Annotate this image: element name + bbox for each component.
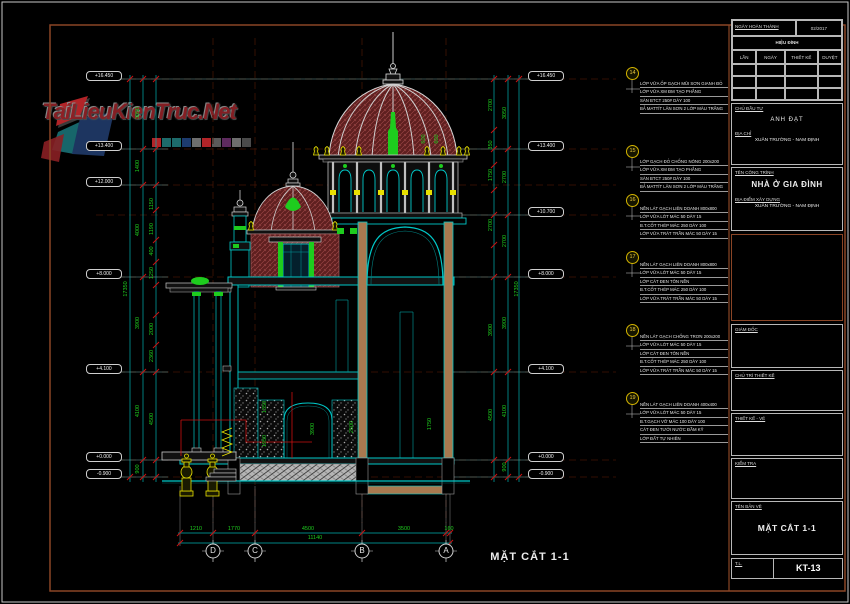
note-callout: 16 [626, 194, 639, 207]
investor-box: CHỦ ĐẦU TƯ ANH ĐẠT ĐỊA CHỈ XUÂN TRƯỜNG -… [731, 103, 843, 165]
dim-left: 4100 [135, 396, 141, 426]
note-callout: 14 [626, 67, 639, 80]
material-note: NỀN LÁT GẠCH LIÊN DOANH 800x800 LỚP VỮA … [640, 261, 728, 303]
elevation-label: +0.000 [528, 452, 564, 462]
completed-date: 02/2017 [796, 20, 842, 36]
extension-lines [180, 486, 450, 562]
elevation-label: +12.000 [86, 177, 122, 187]
dim-right: 3050 [502, 98, 508, 128]
dim-left: 1400 [135, 151, 141, 181]
grid-bubble-d: D [206, 547, 220, 555]
project-name: NHÀ Ở GIA ĐÌNH [732, 180, 842, 189]
note-text: LỚP VỮA TRÁT TRẦN MÁC 50 DÀY 15 [640, 367, 728, 375]
dim-room: 3900 [310, 414, 316, 444]
project-label: TÊN CÔNG TRÌNH [732, 168, 842, 175]
sheet-number: KT-13 [774, 559, 842, 578]
address-value: XUÂN TRƯỜNG - NAM ĐỊNH [732, 138, 842, 143]
dim-room: 1350 [262, 392, 268, 422]
note-text: B.T.CỐT THÉP MÁC 250 DÀY 100 [640, 286, 728, 294]
dim-left-total: 17350 [123, 274, 129, 304]
dim-left: 3050 [135, 98, 141, 128]
note-text: LỚP VỮA ỐP GẠCH MŨI SƠN GIANH ĐỎ [640, 80, 728, 88]
small-dome-tower [247, 142, 339, 290]
rev-col: NGÀY [756, 50, 785, 64]
note-text: NỀN LÁT GẠCH LIÊN DOANH 400x400 [640, 401, 728, 409]
dim-bottom: 4500 [293, 526, 323, 532]
dim-left-sub: 2000 [149, 314, 155, 344]
arched-doorway [284, 403, 332, 458]
vaulted-arch [367, 227, 443, 285]
title-block: NGÀY HOÀN THÀNH 02/2017 HIỆU ĐÍNH LẦN NG… [731, 19, 843, 579]
elevation-label: +13.400 [528, 141, 564, 151]
elevation-label: +13.400 [86, 141, 122, 151]
note-text: LỚP VỮA LÓT MÁC 50 DÀY 15 [640, 213, 728, 221]
dim-left-sub: 4500 [149, 404, 155, 434]
section-title: MẶT CẮT 1-1 [470, 551, 590, 563]
note-text: LỚP VỮA XM ĐM TẠO PHẲNG [640, 88, 728, 96]
note-text: LỚP VỮA LÓT MÁC 50 DÀY 15 [640, 269, 728, 277]
rev-col: DUYỆT [818, 50, 842, 64]
dim-right-sub: 3900 [488, 315, 494, 345]
note-text: LỚP ĐẤT TỰ NHIÊN [640, 435, 728, 443]
elevation-label: +8.000 [86, 269, 122, 279]
elevation-label: +16.450 [86, 71, 122, 81]
note-text: BẢ MATTÍT LĂN SƠN 2 LỚP MÀU TRẮNG [640, 183, 728, 191]
dim-room: 600 [421, 124, 427, 154]
elevation-label: -0.900 [528, 469, 564, 479]
note-callout: 17 [626, 251, 639, 264]
note-text: BẢ MATTÍT LĂN SƠN 2 LỚP MÀU TRẮNG [640, 105, 728, 113]
note-text: B.T.CỐT THÉP MÁC 250 DÀY 100 [640, 358, 728, 366]
designer-label: THIẾT KẾ - VẼ [732, 414, 842, 421]
note-text: B.T.GẠCH VỠ MÁC 100 DÀY 100 [640, 418, 728, 426]
project-box: TÊN CÔNG TRÌNH NHÀ Ở GIA ĐÌNH ĐỊA ĐIỂM X… [731, 167, 843, 231]
grid-bubble-c: C [248, 547, 262, 555]
urn-finial [180, 454, 193, 496]
elevation-label: +4.100 [528, 364, 564, 374]
note-text: SÀN BTCT 250# DÀY 100 [640, 97, 728, 105]
dim-room: 600 [434, 124, 440, 154]
dim-bottom: 3500 [389, 526, 419, 532]
wall-axis-a [444, 222, 453, 458]
note-callout: 18 [626, 324, 639, 337]
dim-right-total: 17350 [514, 274, 520, 304]
investor-label: CHỦ ĐẦU TƯ [732, 104, 842, 111]
dim-right-sub: 2700 [488, 90, 494, 120]
dim-left: 4000 [135, 215, 141, 245]
elevation-label: +8.000 [528, 269, 564, 279]
building-section [162, 32, 470, 496]
dim-right-sub: 1750 [488, 160, 494, 190]
dim-right: 900 [502, 452, 508, 482]
note-text: NỀN LÁT GẠCH LIÊN DOANH 800x800 [640, 205, 728, 213]
note-text: NỀN LÁT GẠCH CHỐNG TRƠN 200x200 [640, 333, 728, 341]
dim-room: 2500 [349, 412, 355, 442]
cad-sheet: TaiLieuKienTruc.Net [0, 0, 850, 604]
elevation-label: -0.900 [86, 469, 122, 479]
dim-right-sub: 350 [488, 130, 494, 160]
note-leaders [626, 80, 640, 418]
dim-left: 3900 [135, 308, 141, 338]
drawing-name-box: TÊN BẢN VẼ MẶT CẮT 1-1 [731, 501, 843, 555]
completed-label: NGÀY HOÀN THÀNH [733, 21, 795, 32]
foundation-hatch [234, 464, 358, 481]
sheet-number-row: T.L. KT-13 [731, 558, 843, 579]
grid-bubble-a: A [439, 547, 453, 555]
note-text: LỚP VỮA TRÁT TRẦN MÁC 50 DÀY 15 [640, 295, 728, 303]
revision-title: HIỆU ĐÍNH [732, 36, 842, 50]
note-text: LỚP VỮA TRÁT TRẦN MÁC 50 DÀY 15 [640, 230, 728, 238]
note-text: LỚP VỮA LÓT MÁC 50 DÀY 15 [640, 409, 728, 417]
material-note: NỀN LÁT GẠCH CHỐNG TRƠN 200x200 LỚP VỮA … [640, 333, 728, 375]
rev-col: LẦN [732, 50, 756, 64]
dome-drum [324, 162, 466, 224]
material-note: NỀN LÁT GẠCH LIÊN DOANH 400x400 LỚP VỮA … [640, 401, 728, 443]
dim-right: 2700 [502, 226, 508, 256]
dim-left: 900 [135, 454, 141, 484]
left-turret [230, 190, 250, 287]
revision-table: NGÀY HOÀN THÀNH 02/2017 HIỆU ĐÍNH LẦN NG… [731, 19, 843, 101]
checker-label: KIỂM TRA [732, 459, 842, 466]
note-text: SÀN BTCT 250# DÀY 100 [640, 175, 728, 183]
dim-bottom: 1210 [181, 526, 211, 532]
elevation-label: +0.000 [86, 452, 122, 462]
dim-left-sub: 1250 [149, 258, 155, 288]
address-label: ĐỊA CHỈ [732, 129, 842, 136]
dim-bottom: 160 [434, 526, 464, 532]
elevation-label: +4.100 [86, 364, 122, 374]
checker-box: KIỂM TRA [731, 458, 843, 499]
dim-right-sub: 4500 [488, 400, 494, 430]
dim-right: 4100 [502, 396, 508, 426]
director-box: GIÁM ĐỐC [731, 324, 843, 368]
note-text: LỚP VỮA XM ĐM TẠO PHẲNG [640, 166, 728, 174]
dim-right: 2700 [502, 162, 508, 192]
grid-bubble-b: B [355, 547, 369, 555]
note-callout: 19 [626, 392, 639, 405]
dim-bottom-total: 11140 [300, 535, 330, 541]
drawing-name-value: MẶT CẮT 1-1 [732, 523, 842, 533]
elevation-label: +16.450 [528, 71, 564, 81]
dim-right: 3900 [502, 308, 508, 338]
rev-col: THIẾT KẾ [785, 50, 818, 64]
stamp-box [731, 234, 843, 321]
drawing-name-label: TÊN BẢN VẼ [732, 502, 842, 509]
note-text: LỚP CÁT ĐEN TÔN NỀN [640, 350, 728, 358]
location-value: XUÂN TRƯỜNG - NAM ĐỊNH [732, 204, 842, 209]
note-text: NỀN LÁT GẠCH LIÊN DOANH 800x800 [640, 261, 728, 269]
note-text: B.T.CỐT THÉP MÁC 250 DÀY 100 [640, 222, 728, 230]
dim-bottom: 1770 [219, 526, 249, 532]
elevation-label: +10.700 [528, 207, 564, 217]
note-text: LỚP GẠCH ĐỎ CHỐNG NÓNG 200x200 [640, 158, 728, 166]
note-text: CÁT ĐEN TƯỚI NƯỚC ĐẦM KỸ [640, 426, 728, 434]
director-label: GIÁM ĐỐC [732, 325, 842, 332]
scale-label: T.L. [732, 559, 773, 566]
wall-axis-b [358, 222, 367, 458]
note-callout: 15 [626, 145, 639, 158]
material-note: LỚP VỮA ỐP GẠCH MŨI SƠN GIANH ĐỎ LỚP VỮA… [640, 80, 728, 114]
dim-right-sub: 2700 [488, 210, 494, 240]
dim-left-sub: 2360 [149, 341, 155, 371]
designer-box: THIẾT KẾ - VẼ [731, 413, 843, 456]
note-text: LỚP VỮA LÓT MÁC 50 DÀY 15 [640, 341, 728, 349]
material-note: LỚP GẠCH ĐỎ CHỐNG NÓNG 200x200 LỚP VỮA X… [640, 158, 728, 192]
dim-room: 1950 [262, 426, 268, 456]
investor-value: ANH ĐẠT [732, 117, 842, 123]
material-note: NỀN LÁT GẠCH LIÊN DOANH 800x800 LỚP VỮA … [640, 205, 728, 239]
location-label: ĐỊA ĐIỂM XÂY DỰNG [732, 195, 842, 202]
note-text: LỚP CÁT ĐEN TÔN NỀN [640, 278, 728, 286]
dim-room: 1750 [427, 409, 433, 439]
design-lead-box: CHỦ TRÌ THIẾT KẾ [731, 370, 843, 411]
design-lead-label: CHỦ TRÌ THIẾT KẾ [732, 371, 842, 378]
